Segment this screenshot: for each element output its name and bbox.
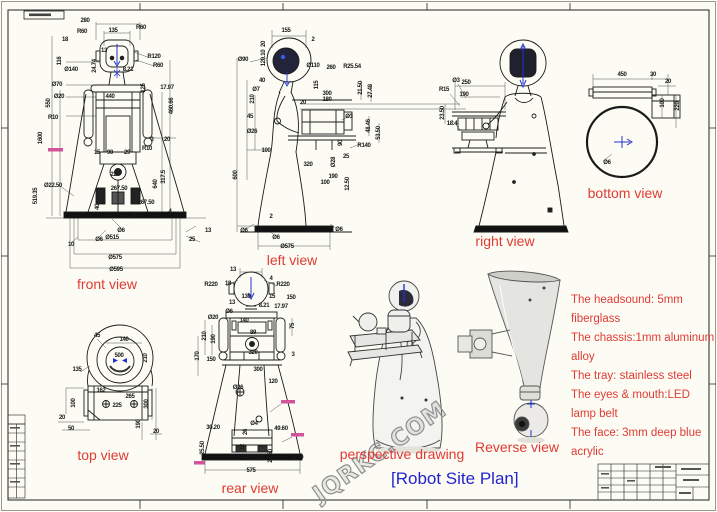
dim-label: 180 [322, 97, 331, 103]
dim-label: Ø3 [452, 78, 459, 84]
dim-label: Ø20 [208, 315, 218, 321]
dim-label: 21.50 [358, 81, 364, 95]
dim-label: 29 [124, 150, 130, 156]
material-note-line: fiberglass [571, 310, 713, 329]
dim-label: 18 [225, 281, 231, 287]
bottom-view-label: bottom view [588, 185, 663, 201]
dim-label: 18 [62, 37, 68, 43]
dim-label: 53.50 [376, 126, 382, 140]
dim-label: 320 [248, 350, 257, 356]
material-note-line: The headsound: 5mm [571, 291, 713, 310]
dim-label: 23.50 [440, 106, 446, 120]
dim-label: 4 [168, 209, 171, 215]
dim-label: Ø28 [331, 157, 337, 167]
dim-label: 18.4 [447, 121, 457, 127]
dim-label: 140 [119, 337, 128, 343]
dim-label: R60 [136, 25, 146, 31]
dim-label: 550 [46, 98, 52, 107]
dim-label: 100 [660, 98, 666, 107]
dim-label: 220 [110, 172, 119, 178]
dim-label: R220 [276, 282, 289, 288]
dim-label: 100 [261, 148, 270, 154]
dim-label: 20 [665, 79, 671, 85]
dim-label: 20 [300, 100, 306, 106]
dim-label: Ø575 [108, 255, 121, 261]
dim-label: 300 [253, 367, 262, 373]
dim-label: 250 [461, 80, 470, 86]
dim-label: 3 [291, 352, 294, 358]
dim-label: Ø26 [233, 385, 243, 391]
front-view-label: front view [77, 276, 137, 292]
dim-label: 519.35 [33, 188, 39, 205]
dim-label: Ø4 [250, 421, 257, 427]
dim-label: 225 [112, 403, 121, 409]
dim-label: Ø6 [225, 309, 232, 315]
dim-label: 450 [617, 72, 626, 78]
dim-label: 4 [269, 276, 272, 282]
dim-label: 267.50 [111, 186, 128, 192]
dim-label: 89 [250, 330, 256, 336]
dim-label: 15 [269, 294, 275, 300]
dim-label: 320 [303, 162, 312, 168]
dim-label: Ø140 [64, 67, 77, 73]
dim-label: 15 [94, 150, 100, 156]
page-title: [Robot Site Plan] [391, 469, 519, 489]
dim-label: 280 [80, 18, 89, 24]
dim-label: 440 [105, 94, 114, 100]
dim-label: 25 [189, 237, 195, 243]
dim-label: 130 [241, 294, 250, 300]
annotation-layer: The headsound: 5mmfiberglassThe chassis:… [0, 0, 717, 512]
dim-label: 49.60 [274, 426, 288, 432]
material-notes: The headsound: 5mmfiberglassThe chassis:… [571, 291, 713, 462]
dim-label: Ø26 [247, 129, 257, 135]
dim-label: 22.50 [268, 449, 274, 463]
dim-label: 8.21 [123, 67, 133, 73]
dim-label: 40 [95, 204, 101, 210]
dim-label: 150 [206, 357, 215, 363]
dim-label: 8.21 [259, 303, 269, 309]
dim-label: 20 [153, 429, 159, 435]
dim-label: 30 [650, 72, 656, 78]
dim-label: 120 [268, 379, 277, 385]
dim-label: 20 [261, 41, 267, 47]
dim-label: 2 [269, 214, 272, 220]
dim-label: Ø110 [306, 63, 319, 69]
dim-label: 13 [205, 228, 211, 234]
dim-label: 460.66 [169, 98, 175, 115]
reverse-view-label: Reverse view [475, 439, 559, 455]
dim-label: 210 [250, 94, 256, 103]
dim-label: R220 [204, 282, 217, 288]
material-note-line: alloy [571, 348, 713, 367]
dim-label: 25 [343, 154, 349, 160]
dim-label: R60 [153, 63, 163, 69]
dim-label: 16 [242, 454, 248, 460]
dim-label: 50 [68, 426, 74, 432]
dim-label: 48.46 [366, 119, 372, 133]
dim-label: Ø6 [272, 235, 279, 241]
dim-label: 45 [247, 114, 253, 120]
dim-label: Ø6 [240, 228, 247, 234]
dim-label: 8.00 [293, 455, 303, 461]
dim-label: 24.74 [92, 59, 98, 73]
dim-label: 2 [311, 37, 314, 43]
material-note-line: lamp belt [571, 405, 713, 424]
material-note-line: The chassis:1mm aluminum [571, 329, 713, 348]
dim-label: R140 [357, 143, 370, 149]
dim-label: 3 [150, 137, 153, 143]
dim-label: R15 [439, 87, 449, 93]
dim-label: 13 [229, 300, 235, 306]
dim-label: 10 [68, 242, 74, 248]
dim-label: Ø6 [603, 160, 610, 166]
dim-label: 150 [286, 295, 295, 301]
dim-label: Ø575 [280, 244, 293, 250]
dim-label: Ø70 [52, 82, 62, 88]
left-view-label: left view [267, 252, 318, 268]
dim-label: 190 [211, 334, 217, 343]
dim-label: 27.48 [368, 84, 374, 98]
dim-label: Ø3 [345, 114, 352, 120]
dim-label: 317.5 [161, 170, 167, 184]
dim-label: 13 [101, 48, 107, 54]
dim-label: 90 [338, 140, 344, 146]
top-view-label: top view [77, 447, 128, 463]
dim-label: 120.10 [261, 50, 267, 67]
perspective-drawing-label: perspective drawing [340, 446, 465, 462]
dim-label: R60 [77, 29, 87, 35]
dim-label: 50 [258, 455, 264, 461]
dim-label: 220 [675, 101, 681, 110]
dim-label: 260 [326, 65, 335, 71]
dim-label: 25.50 [200, 441, 206, 455]
dim-label: 155 [281, 28, 290, 34]
dim-label: Ø595 [109, 267, 122, 273]
dim-label: 12 [240, 444, 246, 450]
dim-label: 267.50 [138, 200, 155, 206]
dim-label: 190 [328, 174, 337, 180]
dim-label: 13 [230, 267, 236, 273]
material-note-line: The eyes & mouth:LED [571, 386, 713, 405]
dim-label: 140 [239, 318, 248, 324]
drawing-sheet: The headsound: 5mmfiberglassThe chassis:… [0, 0, 717, 512]
dim-label: 40 [259, 78, 265, 84]
dim-label: 190 [136, 419, 142, 428]
dim-label: 210 [143, 353, 149, 362]
dim-label: 640 [153, 179, 159, 188]
dim-label: 190 [459, 92, 468, 98]
dim-label: 135 [72, 367, 81, 373]
dim-label: 45 [94, 333, 100, 339]
material-note-line: acrylic [571, 443, 713, 462]
dim-label: 12.50 [345, 177, 351, 191]
dim-label: 170 [195, 351, 201, 360]
dim-label: Ø90 [238, 57, 248, 63]
dim-label: 600 [233, 170, 239, 179]
dim-label: 26 [243, 429, 249, 435]
right-view-label: right view [475, 233, 534, 249]
dim-label: R10 [48, 115, 58, 121]
rear-view-label: rear view [222, 480, 279, 496]
dim-label: 17.97 [160, 85, 174, 91]
dim-label: 20 [59, 415, 65, 421]
dim-label: 30.20 [206, 425, 220, 431]
dim-label: Ø20 [54, 94, 64, 100]
dim-label: Ø6 [95, 237, 102, 243]
dim-label: 20 [132, 213, 138, 219]
dim-label: 500 [114, 353, 123, 359]
dim-label: Ø515 [105, 235, 118, 241]
dim-label: 17.97 [274, 304, 288, 310]
dim-label: 135 [108, 28, 117, 34]
dim-label: 75 [290, 323, 296, 329]
dim-label: 265 [125, 394, 134, 400]
dim-label: 115 [314, 81, 320, 90]
dim-label: 100 [71, 398, 77, 407]
dim-label: 210 [202, 331, 208, 340]
dim-label: R10 [142, 146, 152, 152]
material-note-line: The tray: stainless steel [571, 367, 713, 386]
dim-label: R25.54 [343, 64, 361, 70]
dim-label: R120 [147, 54, 160, 60]
dim-label: Ø6 [117, 228, 124, 234]
dim-label: Ø6 [335, 227, 342, 233]
dim-label: 125 [141, 83, 147, 92]
dim-label: 300 [144, 399, 150, 408]
dim-label: Ø22.50 [44, 183, 62, 189]
dim-label: 90 [107, 150, 113, 156]
dim-label: Ø7 [252, 87, 259, 93]
dim-label: 116 [57, 57, 63, 66]
dim-label: 1600 [38, 132, 44, 144]
dim-label: 100 [320, 180, 329, 186]
dim-label: 162 [96, 388, 105, 394]
dim-label: 20 [164, 137, 170, 143]
dim-label: 575 [246, 468, 255, 474]
material-note-line: The face: 3mm deep blue [571, 424, 713, 443]
